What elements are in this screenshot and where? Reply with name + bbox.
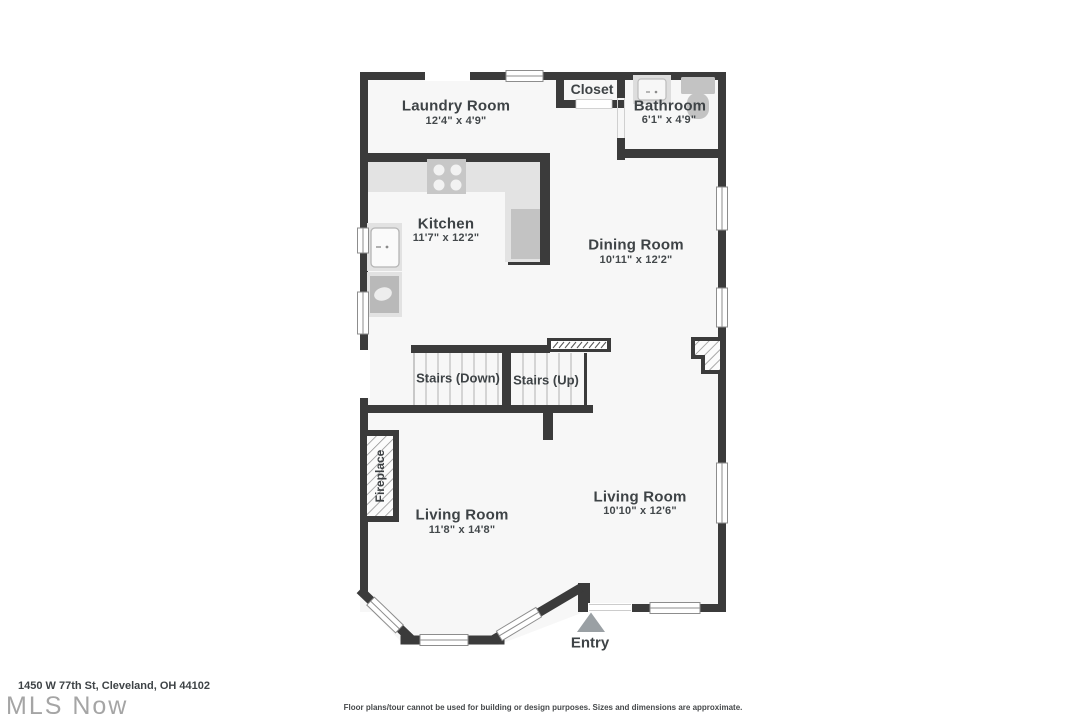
window-bay-center <box>420 635 468 646</box>
fireplace-label: Fireplace <box>373 450 387 503</box>
living-room-right-label: Living Room <box>593 489 686 506</box>
floor-plan-page: Laundry Room 12'4" x 4'9" Closet Bathroo… <box>0 0 1086 724</box>
bathroom-dims: 6'1" x 4'9" <box>642 114 697 126</box>
mls-now-watermark: MLS Now <box>6 692 128 721</box>
window-bottom-right <box>650 603 700 614</box>
dining-room-label: Dining Room <box>588 237 684 254</box>
dining-room-dims: 10'11" x 12'2" <box>600 254 673 266</box>
entry-arrow-icon <box>577 613 605 633</box>
living-room-right-dims: 10'10" x 12'6" <box>603 505 677 517</box>
closet-label: Closet <box>571 81 614 97</box>
window-left-kitchen-2 <box>358 292 369 334</box>
laundry-room-dims: 12'4" x 4'9" <box>426 115 487 127</box>
living-room-left-dims: 11'8" x 14'8" <box>429 524 496 536</box>
laundry-room-label: Laundry Room <box>402 98 510 115</box>
stove-icon <box>427 159 466 194</box>
disclaimer-text: Floor plans/tour cannot be used for buil… <box>344 703 743 712</box>
bathroom-label: Bathroom <box>634 98 706 115</box>
kitchen-sink-icon <box>367 223 402 271</box>
kitchen-dims: 11'7" x 12'2" <box>413 232 480 244</box>
stair-railing <box>551 341 607 349</box>
refrigerator-icon <box>511 209 540 259</box>
window-left-kitchen-1 <box>358 228 369 253</box>
living-room-left-label: Living Room <box>415 507 508 524</box>
window-right-dining-2 <box>717 288 728 327</box>
property-address: 1450 W 77th St, Cleveland, OH 44102 <box>18 680 210 692</box>
window-right-dining-1 <box>717 187 728 230</box>
window-top <box>506 71 543 82</box>
window-right-living <box>717 463 728 523</box>
dishwasher-icon <box>367 272 402 317</box>
entry-label: Entry <box>571 635 609 652</box>
kitchen-label: Kitchen <box>418 216 474 233</box>
stairs-up-label: Stairs (Up) <box>513 373 579 388</box>
floor-plan-drawing <box>0 0 1086 724</box>
stairs-down-label: Stairs (Down) <box>416 371 500 386</box>
